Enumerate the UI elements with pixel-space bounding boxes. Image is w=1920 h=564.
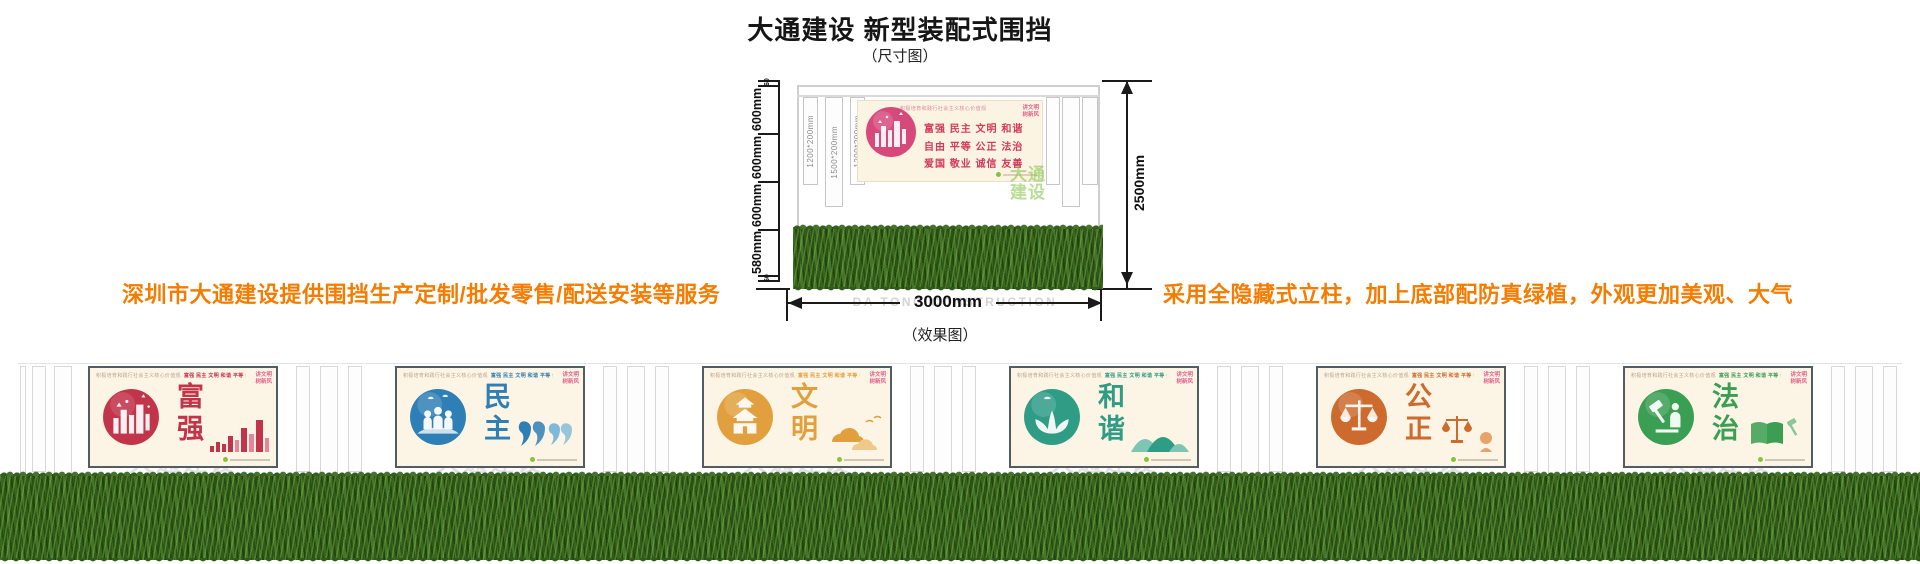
fence-post (1241, 366, 1259, 484)
footer-line (1458, 459, 1498, 461)
fence-post (54, 366, 72, 484)
poster-hexie: 积极培育和践行社会主义核心价值观富强 民主 文明 和谐 平等 公正 法治 爱国 … (1009, 366, 1199, 468)
poster-word: 民主 (481, 382, 508, 458)
poster-gongzheng: 积极培育和践行社会主义核心价值观富强 民主 文明 和谐 平等 公正 法治 爱国 … (1316, 366, 1506, 468)
arrow-right-icon (1088, 297, 1102, 309)
wenming-clouds-icon (822, 408, 884, 454)
footer-line (537, 459, 577, 461)
poster-badge: 讲文明树新风 (1176, 372, 1193, 386)
dim-step-line-left (756, 288, 790, 290)
city-circle-icon (865, 106, 917, 158)
poster-fuqiang: 积极培育和践行社会主义核心价值观富强 民主 文明 和谐 平等 公正 法治 爱国 … (88, 366, 278, 468)
poster-fazhi: 积极培育和践行社会主义核心价值观富强 民主 文明 和谐 平等 公正 法治 爱国 … (1623, 366, 1813, 468)
fence-post (627, 366, 645, 484)
gongzheng-scale-icon (1436, 408, 1498, 454)
arrow-down-icon (1121, 272, 1133, 285)
poster-footer (837, 457, 884, 462)
green-dot-icon (223, 457, 228, 462)
post-right-3 (1082, 97, 1098, 185)
effect-grass-hedge (0, 474, 1920, 560)
poster-header-text: 积极培育和践行社会主义核心价值观 (900, 105, 1026, 112)
poster-word: 法治 (1709, 382, 1736, 458)
fence-post (1855, 366, 1873, 484)
height-dim-line (1126, 82, 1128, 288)
poster-header-text: 积极培育和践行社会主义核心价值观富强 民主 文明 和谐 平等 公正 法治 爱国 … (710, 372, 860, 379)
green-dot-icon (530, 457, 535, 462)
poster-wenming: 积极培育和践行社会主义核心价值观富强 民主 文明 和谐 平等 公正 法治 爱国 … (702, 366, 892, 468)
hexie-circle-icon (1023, 388, 1081, 446)
fence-post (934, 366, 952, 484)
ruler-label-600-1: 600mm (750, 85, 778, 133)
fence-post (1548, 366, 1566, 484)
fence-post (1269, 366, 1283, 472)
promo-canvas: { "page": { "title": "大通建设 新型装配式围挡", "di… (0, 0, 1920, 560)
poster-header-text: 积极培育和践行社会主义核心价值观富强 民主 文明 和谐 平等 公正 法治 爱国 … (1017, 372, 1167, 379)
wenming-circle-icon (716, 388, 774, 446)
poster-badge: 讲文明树新风 (1790, 372, 1807, 386)
poster-badge: 讲文明树新风 (562, 372, 579, 386)
minzhu-circle-icon (409, 388, 467, 446)
green-dot-icon (1144, 457, 1149, 462)
fence-post (1831, 366, 1845, 472)
footer-line (1765, 459, 1805, 461)
poster-word: 和谐 (1095, 382, 1122, 458)
poster-word: 富强 (174, 382, 201, 458)
post-right-2 (1062, 97, 1080, 207)
fence-post (1883, 366, 1897, 472)
footer-line (844, 459, 884, 461)
poster-word: 公正 (1402, 382, 1429, 458)
width-dim-label: 3000mm (898, 292, 998, 312)
fence-post (655, 366, 669, 472)
poster-footer (1144, 457, 1191, 462)
left-marketing-note: 深圳市大通建设提供围挡生产定制/批发零售/配送安装等服务 (122, 277, 720, 309)
poster-footer (1758, 457, 1805, 462)
poster-badge: 讲文明树新风 (1483, 372, 1500, 386)
poster-footer (1451, 457, 1498, 462)
poster-header-text: 积极培育和践行社会主义核心价值观富强 民主 文明 和谐 平等 公正 法治 爱国 … (96, 372, 246, 379)
fence-post (603, 366, 617, 472)
gongzheng-circle-icon (1330, 388, 1388, 446)
fuqiang-circle-icon (102, 388, 160, 446)
ruler-label-600-2: 600mm (750, 133, 778, 181)
dimension-diagram-label: （尺寸图） (560, 45, 1240, 66)
poster-header-text: 积极培育和践行社会主义核心价值观富强 民主 文明 和谐 平等 公正 法治 爱国 … (403, 372, 553, 379)
height-dim-label: 2500mm (1131, 123, 1157, 243)
poster-badge: 讲文明树新风 (869, 372, 886, 386)
fazhi-book-icon (1743, 408, 1805, 454)
ruler-label-60-bottom: 60 (764, 274, 778, 282)
green-dot-icon (996, 172, 1001, 177)
hexie-hills-icon (1129, 408, 1191, 454)
page-title: 大通建设 新型装配式围挡 (560, 10, 1240, 47)
right-marketing-note: 采用全隐藏式立柱，加上底部配防真绿植，外观更加美观、大气 (1163, 277, 1793, 309)
green-dot-icon (1451, 457, 1456, 462)
arrow-up-icon (1121, 81, 1133, 94)
fence-post (910, 366, 924, 472)
green-dot-icon (837, 457, 842, 462)
green-brand-watermark: 大通 建设 (1006, 166, 1050, 202)
poster-word: 文明 (788, 382, 815, 458)
width-dim-line-left (788, 302, 900, 304)
ruler-label-580: 580mm (750, 229, 778, 275)
poster-footer (223, 457, 270, 462)
poster-minzhu: 积极培育和践行社会主义核心价值观富强 民主 文明 和谐 平等 公正 法治 爱国 … (395, 366, 585, 468)
footer-line (230, 459, 270, 461)
poster-header-text: 积极培育和践行社会主义核心价值观富强 民主 文明 和谐 平等 公正 法治 爱国 … (1631, 372, 1781, 379)
ruler-label-600-3: 600mm (750, 181, 778, 229)
fence-post (296, 366, 310, 472)
arrow-left-icon (788, 297, 802, 309)
fuqiang-skyline-icon (208, 408, 270, 454)
fence-post (320, 366, 338, 484)
fazhi-circle-icon (1637, 388, 1695, 446)
footer-line (1151, 459, 1191, 461)
dimension-diagram: 60 600mm 600mm 600mm 580mm 60 1200*200mm… (780, 78, 1170, 343)
fence-post (1524, 366, 1538, 472)
post-1500x200-left: 1500*200mm (825, 97, 843, 207)
fence-edge-post (20, 366, 26, 478)
fence-post (1217, 366, 1231, 472)
poster-footer (530, 457, 577, 462)
fence-post (962, 366, 976, 472)
fence-post (32, 366, 46, 472)
minzhu-people-icon (515, 408, 577, 454)
poster-header-text: 积极培育和践行社会主义核心价值观富强 民主 文明 和谐 平等 公正 法治 爱国 … (1324, 372, 1474, 379)
width-dim-line-right (996, 302, 1102, 304)
green-dot-icon (1758, 457, 1763, 462)
fence-post (348, 366, 362, 472)
poster-badge: 讲文明 树新风 (1022, 105, 1039, 119)
fence-post (1576, 366, 1590, 472)
post-1200x200-left: 1200*200mm (803, 97, 818, 185)
poster-badge: 讲文明树新风 (255, 372, 272, 386)
diagram-grass-hedge (793, 227, 1103, 289)
